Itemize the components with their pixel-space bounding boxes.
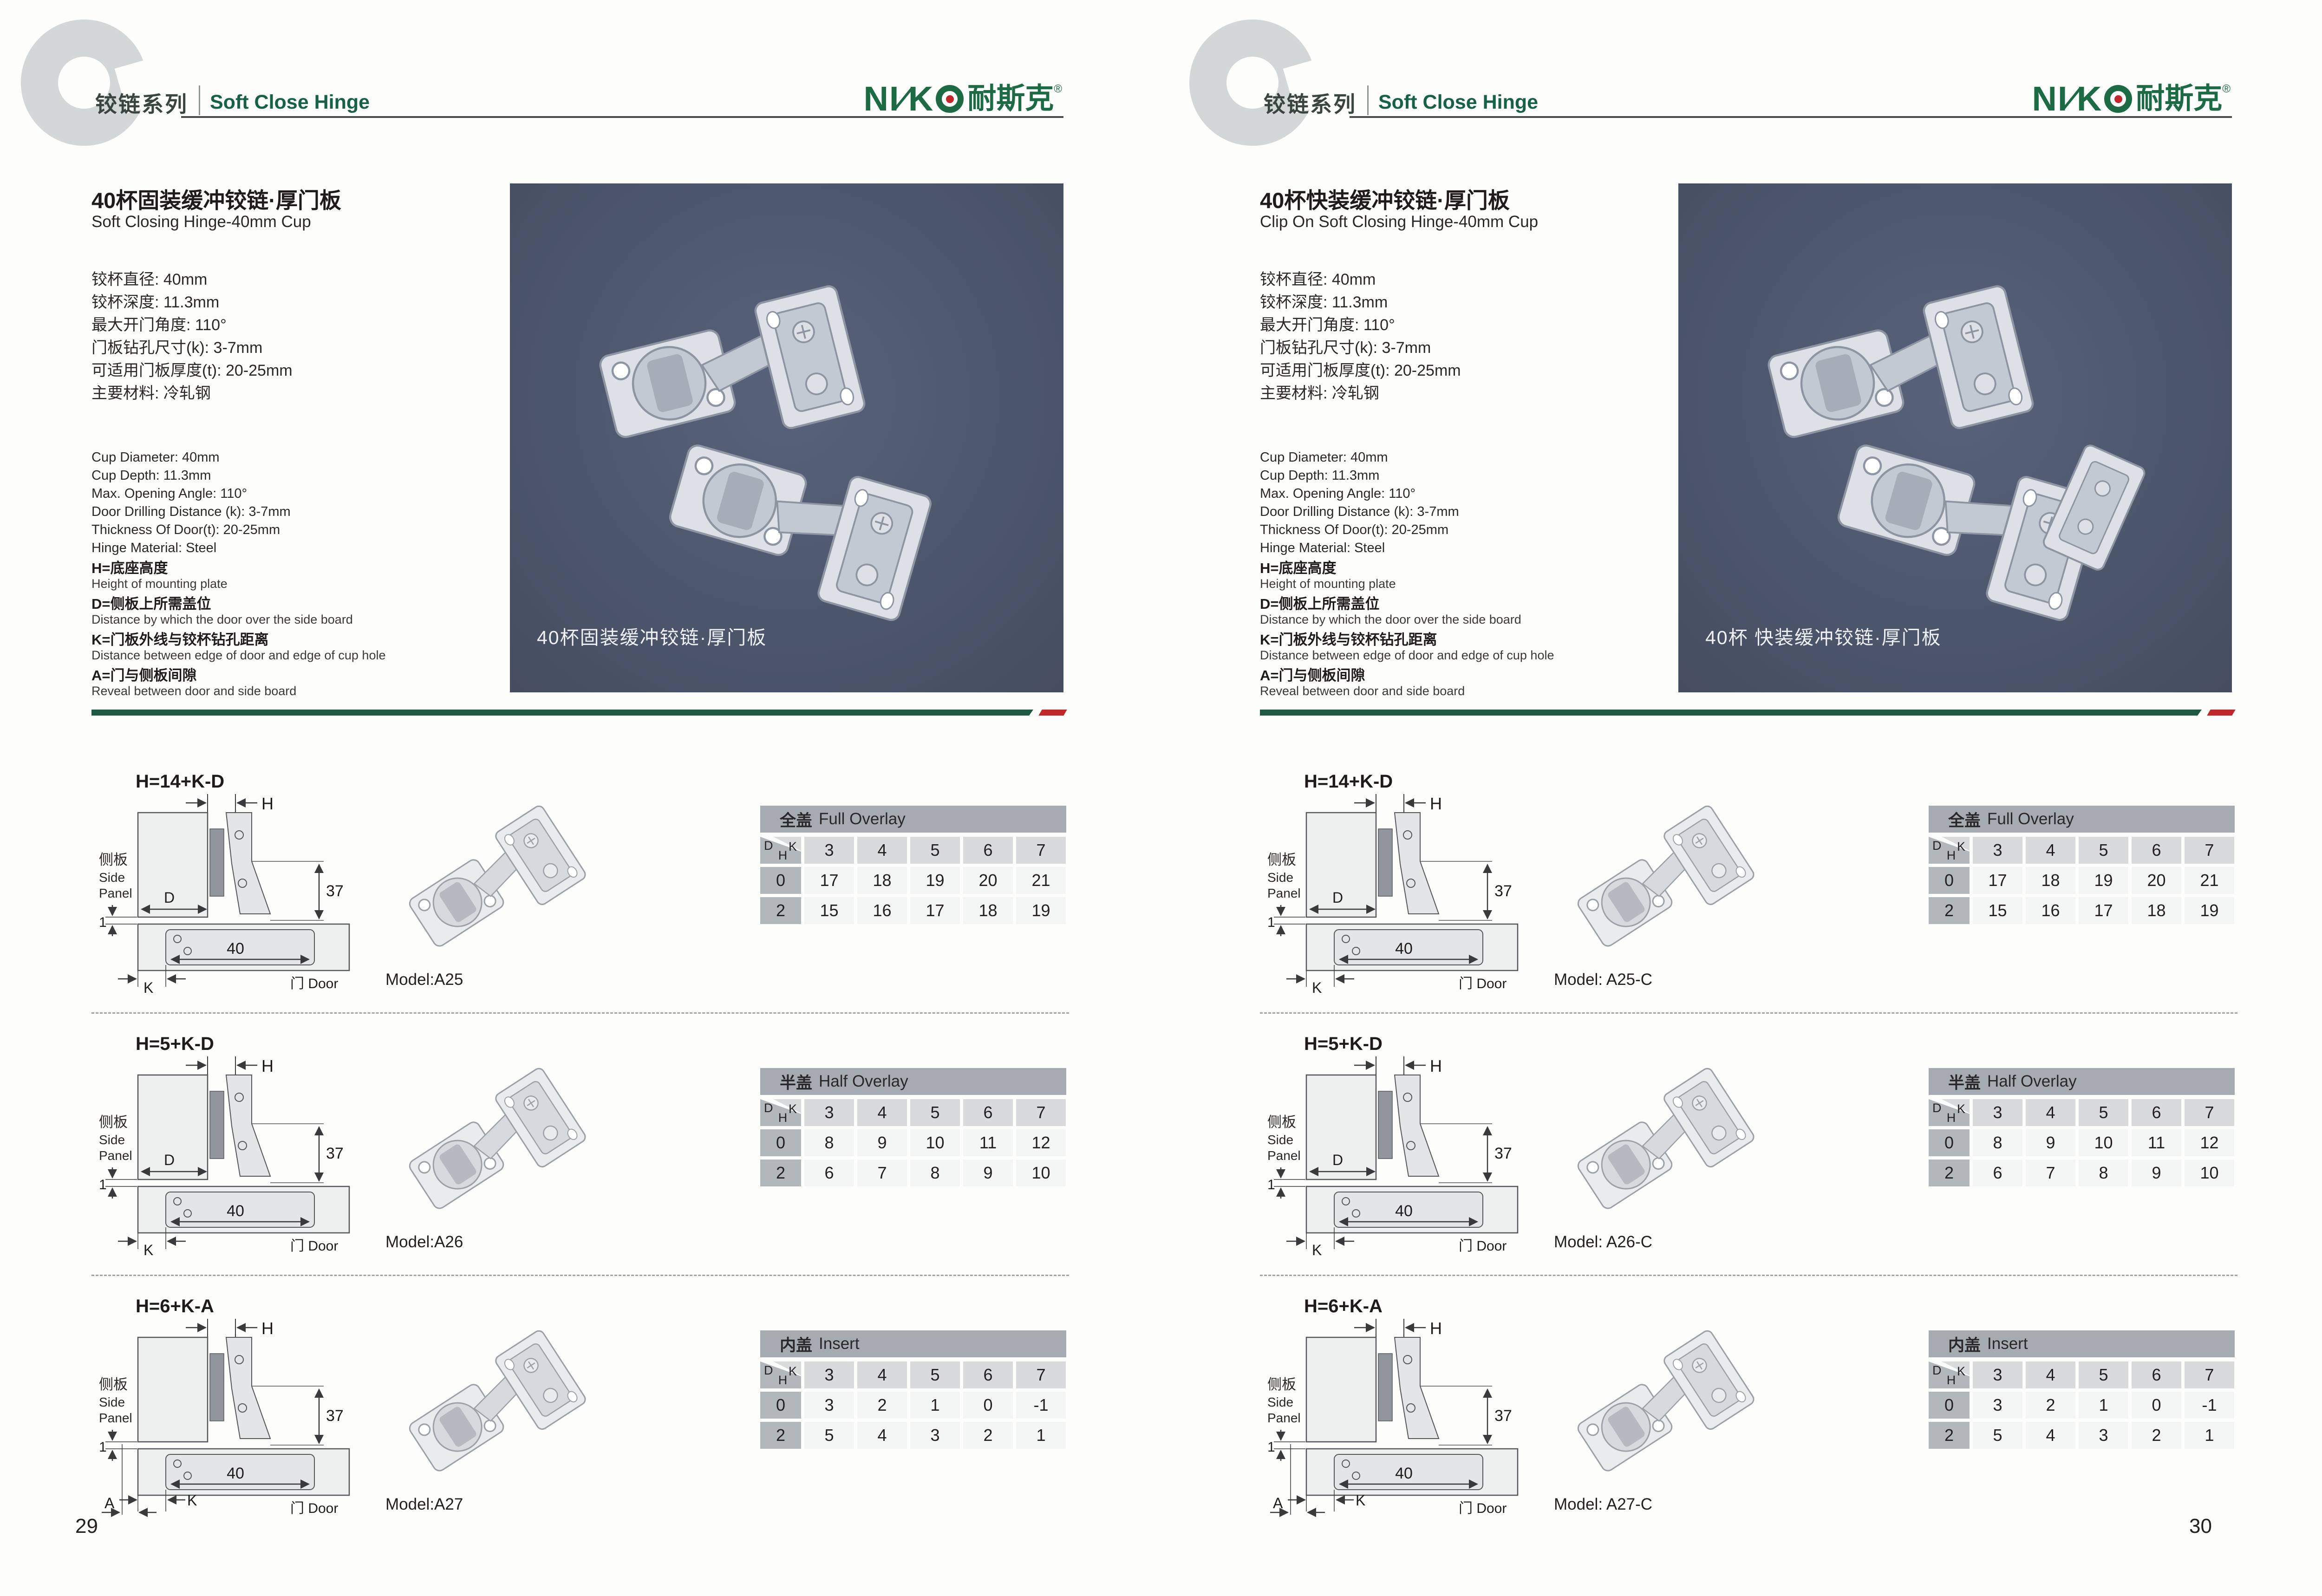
legend-cn: D=侧板上所需盖位 [1260,595,1554,612]
dim-h-label: H [1430,1319,1442,1338]
k-column-header: 6 [2132,837,2181,864]
legend-pair: D=侧板上所需盖位Distance by which the door over… [1260,595,1554,627]
row-divider-dotted [91,1012,1069,1014]
product-photo: 40杯 快装缓冲铰链·厚门板 [1678,183,2232,692]
table-title-bar: 内盖 Insert [1929,1330,2235,1357]
legend-en: Height of mounting plate [1260,577,1554,591]
dim-a-label: A [104,1495,115,1511]
dim-d-label: D [164,1152,175,1168]
dim-k-label: K [1356,1492,1365,1509]
specs-cn: 铰杯直径: 40mm铰杯深度: 11.3mm最大开门角度: 110°门板钻孔尺寸… [91,268,293,405]
h-row-header: 0 [1929,1129,1970,1156]
legend-en: Distance by which the door over the side… [91,612,385,627]
overlay-table-wrap: 半盖 Half Overlay D K H3456708910111226789… [760,1068,1066,1186]
diagram-formula: H=5+K-D [1304,1034,1383,1054]
dim-k-label: K [1312,1242,1322,1256]
brand-logo: NI∕K 耐斯克 ® [2032,82,2231,116]
hinge-photo [1531,1298,1819,1493]
corner-k-label: K [1957,1103,1965,1115]
model-label: Model: A25-C [1554,971,1652,989]
legend-en: Distance between edge of door and edge o… [1260,648,1554,663]
spec-line: 可适用门板厚度(t): 20-25mm [91,359,293,382]
dim-37-label: 37 [326,1145,344,1162]
dim-37-label: 37 [326,882,344,900]
legend-en: Distance by which the door over the side… [1260,612,1554,627]
product-title-en: Soft Closing Hinge-40mm Cup [91,213,311,231]
k-column-header: 3 [1973,837,2022,864]
brand-logo-cn: 耐斯克 [967,85,1054,113]
series-title-en: Soft Close Hinge [210,91,370,114]
diagram-formula: H=6+K-A [136,1296,214,1316]
table-data-cell: 1 [910,1392,960,1419]
legend-pair: D=侧板上所需盖位Distance by which the door over… [91,595,385,627]
door-label: 门 Door [1459,976,1507,991]
table-data-cell: 4 [2026,1422,2075,1449]
k-column-header: 7 [2185,1099,2234,1126]
table-data-cell: 15 [1973,897,2022,924]
product-photo-caption: 40杯 快装缓冲铰链·厚门板 [1705,622,1942,650]
table-data-cell: 2 [2132,1422,2181,1449]
table-data-cell: 7 [2026,1160,2075,1186]
overlay-table: D K H345670891011122678910 [1929,1099,2235,1186]
overlay-table-wrap: 全盖 Full Overlay D K H3456701718192021215… [1929,806,2235,924]
hinge-photo [1531,1036,1819,1231]
hinge-photo-svg [1531,1298,1819,1493]
k-column-header: 4 [857,837,907,864]
corner-k-label: K [1957,840,1965,853]
table-data-cell: 21 [1016,867,1066,894]
table-data-cell: 19 [910,867,960,894]
k-column-header: 7 [2185,1361,2234,1388]
table-data-cell: 11 [2132,1129,2181,1156]
table-corner-cell: D K H [760,1099,801,1126]
product-row-insert: H=6+K-A H 侧板 Side Panel 37 1 40 [1168,1286,2322,1549]
overlay-table: D K H345670171819202121516171819 [1929,837,2235,924]
side-panel-label-cn: 侧板 [99,1114,128,1130]
h-row-header: 0 [760,867,801,894]
technical-diagram: H=14+K-D H 侧板 Side Panel 37 D 1 40 [91,766,356,994]
row-divider-dotted [1260,1012,2237,1014]
table-data-cell: 15 [804,897,854,924]
table-corner-cell: D K H [760,837,801,864]
table-title-bar: 内盖 Insert [760,1330,1066,1357]
legend-pair: A=门与侧板间隙Reveal between door and side boa… [91,667,385,698]
product-title-en: Clip On Soft Closing Hinge-40mm Cup [1260,213,1538,231]
separator-red-bar [2207,710,2236,716]
dim-40-label: 40 [227,940,244,958]
row-divider-dotted [91,1275,1069,1276]
legend-en: Distance between edge of door and edge o… [91,648,385,663]
table-data-cell: 20 [963,867,1013,894]
dim-40-label: 40 [227,1202,244,1220]
dim-h-label: H [1430,1056,1442,1075]
spec-line: Hinge Material: Steel [91,539,291,557]
legend-cn: K=门板外线与铰杯钻孔距离 [1260,631,1554,648]
brand-logo-latin: NI∕K [2032,82,2102,116]
dim-40-label: 40 [1395,940,1413,958]
table-data-cell: 19 [1016,897,1066,924]
k-column-header: 5 [910,1361,960,1388]
series-title-divider [199,85,200,115]
legend-pair: K=门板外线与铰杯钻孔距离Distance between edge of do… [1260,631,1554,663]
corner-d-label: D [764,840,773,852]
h-row-header: 2 [760,1160,801,1186]
k-column-header: 7 [1016,837,1066,864]
k-column-header: 7 [1016,1361,1066,1388]
door-label: 门 Door [290,1501,338,1516]
corner-h-label: H [778,1112,788,1124]
table-data-cell: 5 [804,1422,854,1449]
side-panel-label-en: Side [1267,870,1293,885]
table-data-cell: 3 [1973,1392,2022,1419]
series-title-en: Soft Close Hinge [1378,91,1538,114]
side-panel-label-cn: 侧板 [99,1376,128,1393]
door-label: 门 Door [290,976,338,991]
dim-k-label: K [187,1492,197,1509]
legend-en: Height of mounting plate [91,577,385,591]
corner-k-label: K [789,1103,797,1115]
k-column-header: 5 [910,837,960,864]
dim-37-label: 37 [326,1407,344,1425]
h-row-header: 0 [1929,867,1970,894]
legend-cn: K=门板外线与铰杯钻孔距离 [91,631,385,648]
overlay-table: D K H345670891011122678910 [760,1099,1066,1186]
table-corner-cell: D K H [760,1361,801,1388]
technical-diagram-svg: H=14+K-D H 侧板 Side Panel 37 D 1 40 [1260,766,1525,994]
spec-line: Hinge Material: Steel [1260,539,1459,557]
model-label: Model:A25 [385,971,463,989]
spec-line: 铰杯直径: 40mm [91,268,293,291]
spec-line: Cup Depth: 11.3mm [91,467,291,485]
corner-d-label: D [1932,840,1942,852]
product-title-cn: 40杯固装缓冲铰链·厚门板 [91,182,341,215]
table-data-cell: 9 [857,1129,907,1156]
table-data-cell: 1 [1016,1422,1066,1449]
k-column-header: 3 [804,1099,854,1126]
catalog-page-right: 铰链系列 Soft Close Hinge NI∕K 耐斯克 ® 40杯快装缓冲… [1168,0,2322,1596]
separator-green-bar [91,710,1033,716]
corner-k-label: K [789,1365,797,1378]
registered-mark: ® [1054,83,1062,96]
dim-1-label: 1 [1267,1440,1275,1455]
legend-cn: D=侧板上所需盖位 [91,595,385,612]
k-column-header: 4 [857,1099,907,1126]
corner-h-label: H [778,1374,788,1387]
technical-diagram-svg: H=5+K-D H 侧板 Side Panel 37 D 1 40 [1260,1029,1525,1256]
dim-1-label: 1 [1267,915,1275,930]
product-photo-image [510,183,1063,692]
table-data-cell: 0 [963,1392,1013,1419]
table-data-cell: 2 [857,1392,907,1419]
hinge-photo-svg [1531,1036,1819,1231]
spec-line: 最大开门角度: 110° [91,314,293,337]
table-title-en: Full Overlay [1987,810,2074,828]
technical-diagram: H=5+K-D H 侧板 Side Panel 37 D 1 40 [1260,1029,1525,1256]
technical-diagram-svg: H=14+K-D H 侧板 Side Panel 37 D 1 40 [91,766,356,994]
catalog-spread: 铰链系列 Soft Close Hinge NI∕K 耐斯克 ® 40杯固装缓冲… [0,0,2322,1596]
product-photo-svg [510,183,1063,692]
corner-h-label: H [1947,1374,1956,1387]
table-data-cell: 18 [2132,897,2181,924]
k-column-header: 4 [857,1361,907,1388]
table-data-cell: 9 [2026,1129,2075,1156]
k-column-header: 4 [2026,1361,2075,1388]
product-photo-image [1678,183,2232,692]
hinge-photo [362,1036,650,1231]
table-title-en: Insert [819,1335,860,1353]
k-column-header: 3 [1973,1361,2022,1388]
technical-diagram: H=6+K-A H 侧板 Side Panel 37 1 40 [1260,1291,1525,1518]
table-data-cell: 3 [804,1392,854,1419]
series-title-cn: 铰链系列 [1264,86,1357,118]
dim-37-label: 37 [1494,882,1512,900]
k-column-header: 4 [2026,1099,2075,1126]
brand-logo-target-icon [936,85,964,113]
table-data-cell: 2 [963,1422,1013,1449]
side-panel-label-en: Panel [99,1148,132,1163]
side-panel-label-cn: 侧板 [1267,1376,1296,1393]
table-data-cell: 5 [1973,1422,2022,1449]
table-data-cell: 16 [857,897,907,924]
model-label: Model: A27-C [1554,1495,1652,1514]
table-title-en: Full Overlay [819,810,906,828]
diagram-formula: H=14+K-D [136,771,224,792]
legend-pair: A=门与侧板间隙Reveal between door and side boa… [1260,667,1554,698]
overlay-table-wrap: 内盖 Insert D K H3456703210-1254321 [760,1330,1066,1449]
table-data-cell: 3 [2079,1422,2128,1449]
table-data-cell: 19 [2079,867,2128,894]
side-panel-label-en: Panel [1267,1411,1301,1425]
k-column-header: 3 [804,837,854,864]
overlay-table-wrap: 内盖 Insert D K H3456703210-1254321 [1929,1330,2235,1449]
side-panel-label-en: Side [1267,1395,1293,1409]
table-data-cell: 6 [1973,1160,2022,1186]
dim-k-label: K [143,1242,153,1256]
spec-line: 可适用门板厚度(t): 20-25mm [1260,359,1461,382]
hinge-photo-svg [362,773,650,968]
spec-line: 门板钻孔尺寸(k): 3-7mm [91,337,293,359]
spec-line: Max. Opening Angle: 110° [91,485,291,503]
spec-line: Door Drilling Distance (k): 3-7mm [1260,503,1459,521]
corner-d-label: D [1932,1102,1942,1114]
dimension-legend: H=底座高度Height of mounting plateD=侧板上所需盖位D… [1260,560,1554,703]
dim-d-label: D [164,889,175,906]
spec-line: Cup Depth: 11.3mm [1260,467,1459,485]
table-data-cell: 8 [804,1129,854,1156]
hinge-photo [1531,773,1819,968]
legend-en: Reveal between door and side board [1260,684,1554,698]
spec-line: 主要材料: 冷轧钢 [1260,382,1461,405]
side-panel-label-en: Panel [99,1411,132,1425]
table-title-en: Half Overlay [819,1072,908,1091]
table-data-cell: 10 [1016,1160,1066,1186]
table-corner-cell: D K H [1929,1361,1970,1388]
technical-diagram-svg: H=5+K-D H 侧板 Side Panel 37 D 1 40 [91,1029,356,1256]
dim-k-label: K [143,979,153,994]
legend-pair: H=底座高度Height of mounting plate [91,560,385,591]
h-row-header: 2 [1929,1422,1970,1449]
h-row-header: 2 [1929,897,1970,924]
product-row-full-overlay: H=14+K-D H 侧板 Side Panel 37 D 1 40 [1168,762,2322,1024]
dimension-legend: H=底座高度Height of mounting plateD=侧板上所需盖位D… [91,560,385,703]
table-title-bar: 全盖 Full Overlay [760,806,1066,833]
dim-d-label: D [1332,889,1343,906]
corner-h-label: H [1947,1112,1956,1124]
overlay-table-wrap: 半盖 Half Overlay D K H3456708910111226789… [1929,1068,2235,1186]
k-column-header: 3 [1973,1099,2022,1126]
series-title-divider [1367,85,1369,115]
specs-cn: 铰杯直径: 40mm铰杯深度: 11.3mm最大开门角度: 110°门板钻孔尺寸… [1260,268,1461,405]
door-label: 门 Door [1459,1501,1507,1516]
dim-40-label: 40 [1395,1202,1413,1220]
model-label: Model:A26 [385,1233,463,1251]
product-photo-svg [1678,183,2232,692]
table-data-cell: 1 [2079,1392,2128,1419]
table-data-cell: 10 [910,1129,960,1156]
spec-line: Thickness Of Door(t): 20-25mm [1260,521,1459,539]
technical-diagram-svg: H=6+K-A H 侧板 Side Panel 37 1 40 [91,1291,356,1518]
k-column-header: 6 [2132,1361,2181,1388]
dim-1-label: 1 [99,1177,107,1192]
table-title-en: Insert [1987,1335,2028,1353]
h-row-header: 0 [1929,1392,1970,1419]
technical-diagram: H=5+K-D H 侧板 Side Panel 37 D 1 40 [91,1029,356,1256]
table-data-cell: 19 [2185,897,2234,924]
diagram-formula: H=5+K-D [136,1034,214,1054]
brand-logo-cn: 耐斯克 [2136,85,2222,113]
separator-red-bar [1038,710,1067,716]
separator-green-bar [1260,710,2202,716]
legend-cn: H=底座高度 [91,560,385,577]
dim-1-label: 1 [99,915,107,930]
corner-d-label: D [1932,1364,1942,1377]
table-title-cn: 半盖 [780,1070,812,1094]
spec-line: 铰杯深度: 11.3mm [91,291,293,314]
corner-d-label: D [764,1364,773,1377]
table-data-cell: 8 [2079,1160,2128,1186]
side-panel-label-cn: 侧板 [1267,1114,1296,1130]
product-photo-caption: 40杯固装缓冲铰链·厚门板 [537,622,767,650]
table-data-cell: 18 [963,897,1013,924]
legend-cn: A=门与侧板间隙 [91,667,385,684]
table-data-cell: 18 [2026,867,2075,894]
dim-h-label: H [261,794,274,813]
brand-logo-latin: NI∕K [863,82,934,116]
table-data-cell: 10 [2185,1160,2234,1186]
model-label: Model: A26-C [1554,1233,1652,1251]
h-row-header: 0 [760,1392,801,1419]
spec-line: 最大开门角度: 110° [1260,314,1461,337]
technical-diagram-svg: H=6+K-A H 侧板 Side Panel 37 1 40 [1260,1291,1525,1518]
table-data-cell: 12 [2185,1129,2234,1156]
side-panel-label-en: Side [99,1395,125,1409]
dim-d-label: D [1332,1152,1343,1168]
hinge-photo [362,1298,650,1493]
product-photo: 40杯固装缓冲铰链·厚门板 [510,183,1063,692]
side-panel-label-en: Panel [1267,886,1301,900]
spec-line: Cup Diameter: 40mm [91,449,291,467]
diagram-formula: H=14+K-D [1304,771,1393,792]
overlay-table: D K H3456703210-1254321 [1929,1361,2235,1449]
dim-1-label: 1 [99,1440,107,1455]
k-column-header: 3 [804,1361,854,1388]
spec-line: 门板钻孔尺寸(k): 3-7mm [1260,337,1461,359]
corner-k-label: K [1957,1365,1965,1378]
overlay-table: D K H345670171819202121516171819 [760,837,1066,924]
k-column-header: 5 [2079,837,2128,864]
table-data-cell: 17 [2079,897,2128,924]
table-title-cn: 内盖 [780,1332,812,1356]
page-number: 30 [2189,1515,2212,1538]
table-title-cn: 全盖 [1948,808,1981,831]
corner-h-label: H [778,849,788,862]
table-data-cell: 7 [857,1160,907,1186]
table-title-bar: 半盖 Half Overlay [760,1068,1066,1095]
overlay-table-wrap: 全盖 Full Overlay D K H3456701718192021215… [760,806,1066,924]
table-data-cell: 18 [857,867,907,894]
overlay-table: D K H3456703210-1254321 [760,1361,1066,1449]
page-number: 29 [75,1515,98,1538]
table-data-cell: 2 [2026,1392,2075,1419]
legend-cn: A=门与侧板间隙 [1260,667,1554,684]
corner-d-label: D [764,1102,773,1114]
spec-line: 主要材料: 冷轧钢 [91,382,293,405]
side-panel-label-en: Side [99,1133,125,1147]
corner-k-label: K [789,840,797,853]
k-column-header: 5 [910,1099,960,1126]
table-data-cell: 20 [2132,867,2181,894]
legend-pair: H=底座高度Height of mounting plate [1260,560,1554,591]
table-data-cell: 21 [2185,867,2234,894]
table-title-en: Half Overlay [1987,1072,2077,1091]
table-data-cell: 8 [910,1160,960,1186]
product-row-full-overlay: H=14+K-D H 侧板 Side Panel 37 D 1 40 [0,762,1168,1024]
table-data-cell: 16 [2026,897,2075,924]
table-data-cell: 10 [2079,1129,2128,1156]
model-label: Model:A27 [385,1495,463,1514]
h-row-header: 2 [760,1422,801,1449]
hinge-photo-svg [362,1298,650,1493]
door-label: 门 Door [1459,1238,1507,1254]
k-column-header: 5 [2079,1099,2128,1126]
corner-h-label: H [1947,849,1956,862]
table-title-bar: 全盖 Full Overlay [1929,806,2235,833]
table-title-bar: 半盖 Half Overlay [1929,1068,2235,1095]
dim-h-label: H [261,1319,274,1338]
table-data-cell: -1 [2185,1392,2234,1419]
spec-line: Max. Opening Angle: 110° [1260,485,1459,503]
h-row-header: 2 [760,897,801,924]
specs-en: Cup Diameter: 40mmCup Depth: 11.3mmMax. … [91,449,291,557]
table-data-cell: 9 [963,1160,1013,1186]
spec-line: 铰杯直径: 40mm [1260,268,1461,291]
dim-40-label: 40 [227,1465,244,1482]
k-column-header: 6 [963,1361,1013,1388]
table-data-cell: 6 [804,1160,854,1186]
table-corner-cell: D K H [1929,1099,1970,1126]
side-panel-label-en: Panel [1267,1148,1301,1163]
k-column-header: 6 [963,837,1013,864]
registered-mark: ® [2222,83,2231,96]
side-panel-label-en: Panel [99,886,132,900]
dim-40-label: 40 [1395,1465,1413,1482]
brand-logo-target-icon [2104,85,2132,113]
product-row-insert: H=6+K-A H 侧板 Side Panel 37 1 40 [0,1286,1168,1549]
hinge-photo [362,773,650,968]
k-column-header: 6 [2132,1099,2181,1126]
spec-line: Door Drilling Distance (k): 3-7mm [91,503,291,521]
dim-h-label: H [261,1056,274,1075]
